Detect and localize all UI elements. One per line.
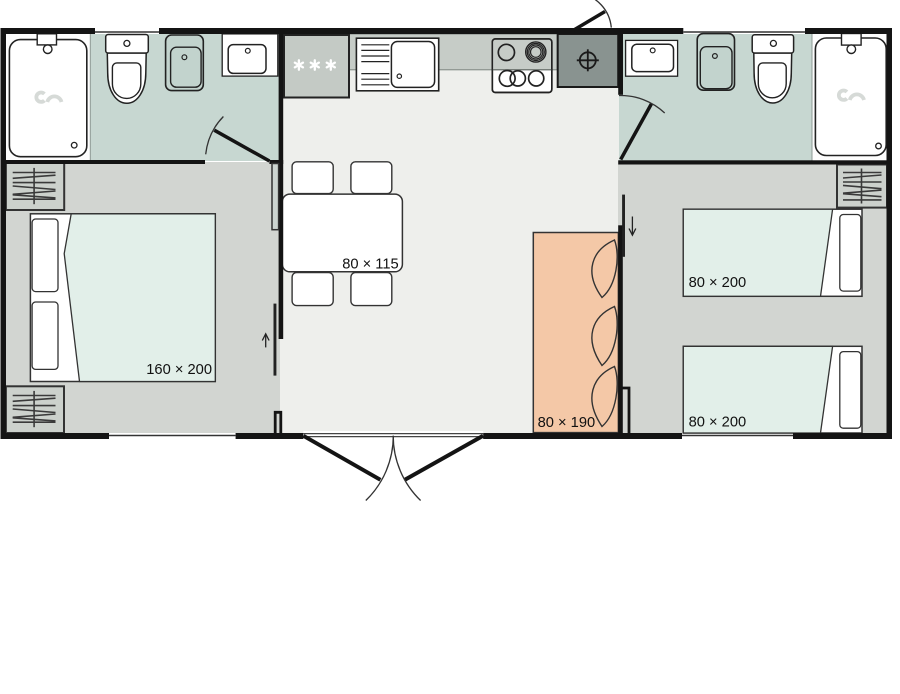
svg-text:160 × 200: 160 × 200: [146, 362, 212, 378]
svg-text:80 × 200: 80 × 200: [689, 415, 747, 431]
svg-text:80 × 190: 80 × 190: [538, 415, 596, 431]
svg-text:80 × 115: 80 × 115: [342, 257, 399, 273]
svg-text:80 × 200: 80 × 200: [689, 275, 747, 291]
